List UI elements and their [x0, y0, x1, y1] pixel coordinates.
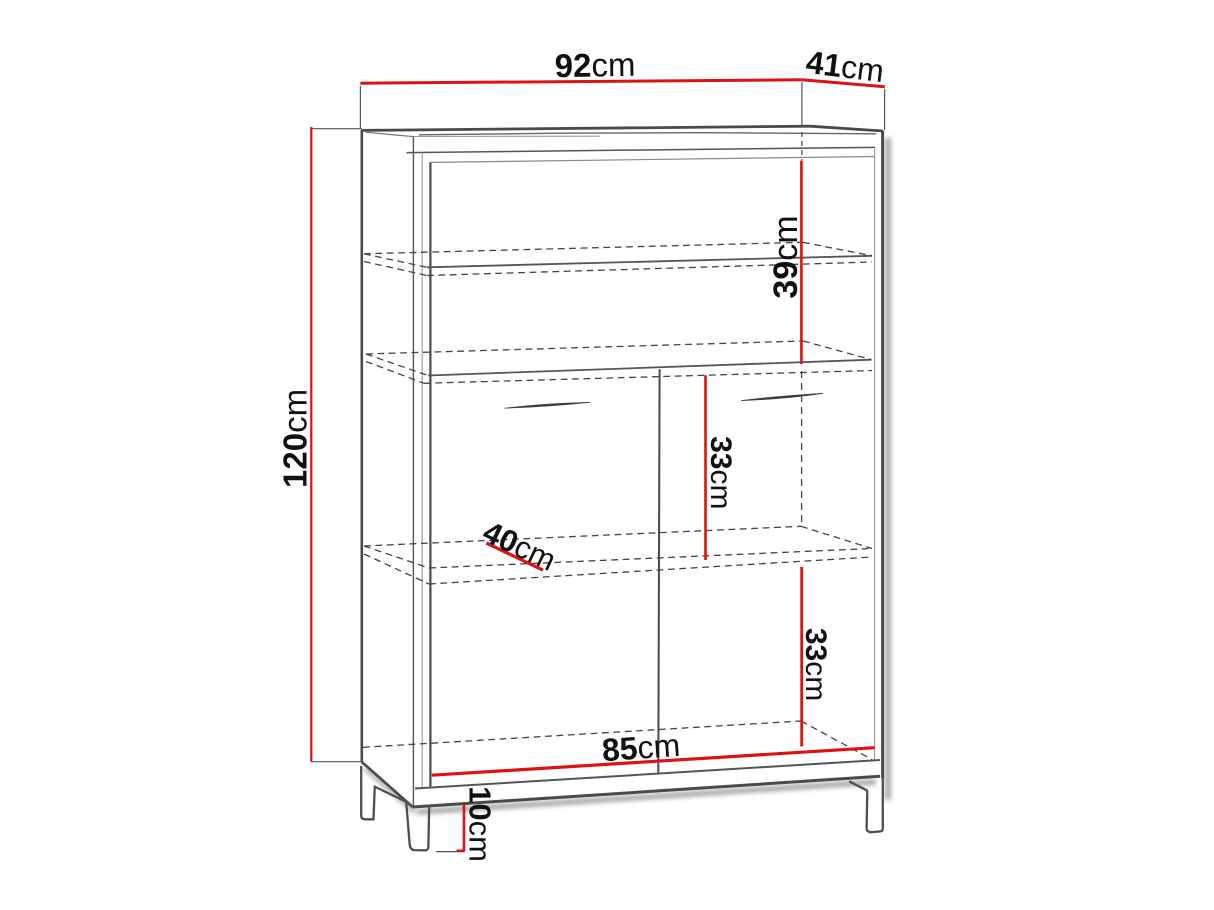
svg-text:120cm: 120cm — [276, 389, 313, 488]
svg-text:10cm: 10cm — [463, 786, 498, 862]
svg-text:33cm: 33cm — [800, 628, 833, 701]
svg-text:92cm: 92cm — [554, 45, 635, 83]
svg-text:85cm: 85cm — [601, 727, 682, 768]
svg-text:33cm: 33cm — [705, 436, 738, 509]
svg-text:39cm: 39cm — [767, 215, 805, 298]
